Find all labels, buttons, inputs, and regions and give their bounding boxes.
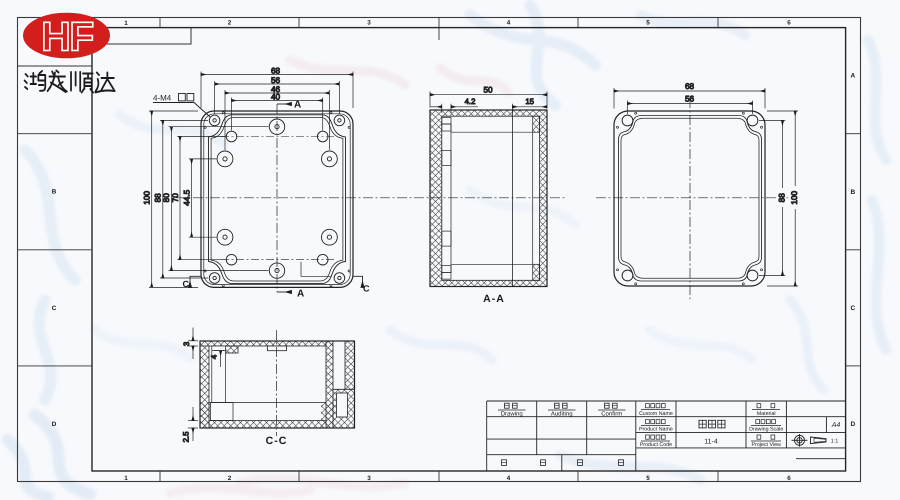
svg-text:2: 2 (228, 20, 232, 27)
svg-text:70: 70 (171, 193, 180, 203)
svg-text:40: 40 (271, 93, 281, 102)
svg-text:A: A (297, 289, 304, 300)
svg-text:C: C (183, 279, 190, 289)
svg-text:4.2: 4.2 (465, 97, 476, 106)
svg-text:Product Code: Product Code (640, 442, 672, 448)
svg-text:4: 4 (507, 20, 511, 27)
svg-text:56: 56 (271, 76, 281, 85)
svg-text:11-4: 11-4 (704, 438, 718, 445)
svg-text:Auditing: Auditing (551, 411, 573, 418)
svg-text:2: 2 (228, 475, 232, 482)
svg-text:4-M4: 4-M4 (153, 94, 172, 103)
svg-text:15: 15 (525, 97, 534, 106)
svg-text:Material: Material (757, 411, 776, 417)
svg-text:56: 56 (685, 95, 695, 104)
svg-text:B: B (52, 189, 57, 196)
svg-text:1: 1 (124, 475, 128, 482)
svg-text:Drawing Scale: Drawing Scale (749, 427, 783, 433)
svg-text:A: A (294, 100, 301, 111)
svg-text:5: 5 (646, 20, 650, 27)
svg-text:3: 3 (367, 475, 371, 482)
svg-text:6: 6 (787, 20, 791, 27)
svg-text:Custom Name: Custom Name (639, 411, 673, 417)
svg-text:Product Name: Product Name (639, 427, 673, 433)
svg-text:Confirm: Confirm (601, 411, 622, 418)
svg-text:1:1: 1:1 (831, 439, 839, 445)
svg-text:5: 5 (646, 475, 650, 482)
svg-text:44.5: 44.5 (182, 189, 191, 205)
svg-text:68: 68 (685, 82, 695, 91)
svg-text:6: 6 (787, 475, 791, 482)
svg-text:4: 4 (210, 354, 219, 359)
svg-text:3: 3 (182, 342, 191, 346)
svg-text:A-A: A-A (483, 293, 505, 305)
svg-text:C: C (363, 284, 370, 294)
svg-text:Project View: Project View (752, 442, 782, 448)
svg-text:3: 3 (367, 20, 371, 27)
svg-text:4: 4 (507, 475, 511, 482)
svg-text:C-C: C-C (266, 435, 288, 447)
svg-text:100: 100 (790, 191, 799, 205)
svg-text:1: 1 (124, 20, 128, 27)
svg-text:D: D (52, 421, 57, 428)
svg-text:68: 68 (271, 67, 281, 76)
svg-text:D: D (850, 421, 855, 428)
svg-text:2.5: 2.5 (182, 431, 191, 443)
svg-text:100: 100 (143, 191, 152, 205)
svg-text:C: C (850, 305, 855, 312)
svg-text:C: C (52, 305, 57, 312)
svg-text:B: B (850, 189, 855, 196)
svg-text:Drawing: Drawing (501, 411, 523, 418)
svg-text:50: 50 (483, 86, 493, 95)
svg-text:88: 88 (778, 193, 787, 203)
svg-text:A: A (850, 73, 855, 80)
svg-text:A4: A4 (831, 422, 841, 429)
svg-text:HF: HF (41, 14, 93, 60)
